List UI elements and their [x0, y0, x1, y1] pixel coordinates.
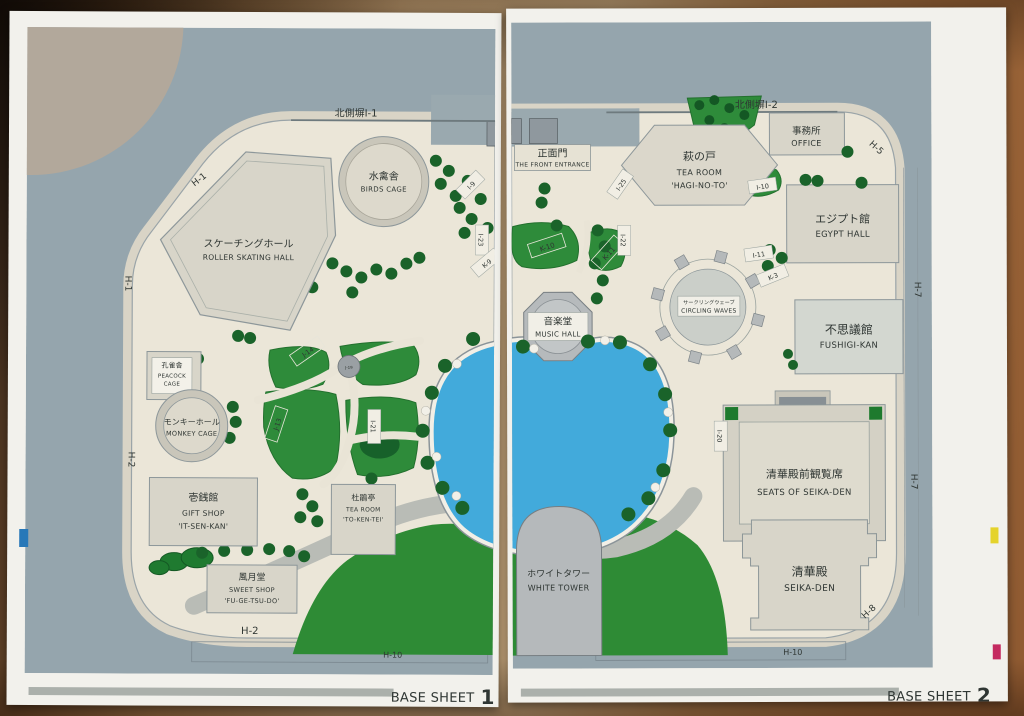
birds-label-en: BIRDS CAGE	[361, 185, 407, 193]
egypt-hall: エジプト館 EGYPT HALL	[787, 185, 899, 263]
entrance-label-jp: 正面門	[537, 147, 567, 159]
monkey-label-en: MONKEY CAGE	[166, 430, 217, 438]
sweet-label-en2: 'FU-GE-TSU-DO'	[224, 597, 279, 605]
office-label-jp: 事務所	[792, 125, 821, 137]
tag-i21: I-21	[368, 409, 381, 443]
monkey-label-jp: モンキーホール	[164, 418, 220, 427]
edge-h2-left: H-2	[126, 452, 136, 468]
north-wall-label: 北側塀I-1	[335, 106, 378, 119]
registration-mark-magenta	[993, 644, 1001, 659]
edge-h10-bottom: H-10	[783, 648, 802, 657]
front-entrance-label: 正面門 THE FRONT ENTRANCE	[514, 144, 590, 170]
tag-i23: I-23	[475, 225, 488, 255]
seats-label-en: SEATS OF SEIKA-DEN	[757, 488, 852, 498]
skating-label-en: ROLLER SKATING HALL	[203, 253, 295, 262]
sheet1-number: 1	[480, 685, 494, 707]
photo-of-park-base-maps: J-19	[0, 0, 1024, 716]
monkey-cage: モンキーホール MONKEY CAGE	[156, 390, 228, 462]
birds-cage: 水禽舎 BIRDS CAGE	[339, 136, 429, 226]
sheet1-footer-bar	[29, 687, 394, 697]
token-label-jp: 杜鵑亭	[351, 492, 375, 502]
circling-label-en: CIRCLING WAVES	[681, 308, 736, 315]
svg-text:I-22: I-22	[619, 234, 627, 247]
egypt-label-en: EGYPT HALL	[815, 230, 869, 240]
seats-label-jp: 清華殿前観覧席	[766, 467, 843, 481]
token-label-en1: TEA ROOM	[345, 506, 381, 513]
office-label-en: OFFICE	[791, 139, 821, 148]
gift-label-en1: GIFT SHOP	[182, 509, 225, 518]
front-entrance-plaza	[431, 95, 495, 145]
seika-label-jp: 清華殿	[792, 565, 828, 579]
gift-shop: 壱銭館 GIFT SHOP 'IT-SEN-KAN'	[149, 478, 257, 546]
music-label-jp: 音楽堂	[544, 315, 573, 327]
sheet1-map: J-19	[6, 11, 501, 707]
entrance-gate-right	[529, 119, 557, 144]
north-wall-label: 北側塀I-2	[735, 98, 778, 111]
seats-of-seika-den: 清華殿前観覧席 SEATS OF SEIKA-DEN	[723, 391, 885, 541]
registration-mark-cyan	[19, 529, 28, 547]
fushigi-kan: 不思議館 FUSHIGI-KAN	[795, 300, 903, 374]
edge-h7-upper: H-7	[912, 282, 922, 298]
sweet-label-jp: 風月堂	[239, 571, 266, 583]
tag-j19: J-19	[344, 365, 353, 370]
fushigi-label-en: FUSHIGI-KAN	[820, 341, 878, 351]
tag-i22: I-22	[618, 225, 631, 255]
tower-label-jp: ホワイトタワー	[527, 568, 590, 579]
tower-label-en: WHITE TOWER	[528, 583, 590, 592]
svg-text:I-20: I-20	[715, 430, 723, 443]
peacock-label-en2: CAGE	[164, 382, 181, 388]
sweet-shop: 風月堂 SWEET SHOP 'FU-GE-TSU-DO'	[207, 565, 297, 613]
white-tower: ホワイトタワー WHITE TOWER	[516, 506, 601, 655]
entrance-label-en: THE FRONT ENTRANCE	[514, 161, 589, 168]
base-sheet-2: ホワイトタワー WHITE TOWER 音楽堂 MUSIC HALL	[506, 7, 1008, 702]
birds-label-jp: 水禽舎	[369, 169, 399, 182]
fushigi-label-jp: 不思議館	[825, 322, 873, 337]
svg-text:I-21: I-21	[369, 420, 377, 433]
sheet1-title: BASE SHEET	[391, 691, 475, 706]
peacock-label-jp: 孔雀舎	[161, 361, 182, 370]
sheet2-map: ホワイトタワー WHITE TOWER 音楽堂 MUSIC HALL	[506, 7, 1008, 702]
edge-h2-bottom: H-2	[241, 626, 259, 637]
hagi-label-jp: 萩の戸	[683, 150, 716, 163]
sweet-label-en1: SWEET SHOP	[229, 586, 275, 594]
hagi-label-en2: 'HAGI-NO-TO'	[671, 181, 728, 190]
token-label-en2: 'TO-KEN-TEI'	[343, 516, 384, 523]
edge-h1-left: H-1	[122, 276, 132, 292]
north-wall	[291, 120, 495, 121]
hagi-label-en1: TEA ROOM	[676, 168, 722, 177]
circling-label-jp: サークリングウェーブ	[683, 298, 735, 306]
music-label-en: MUSIC HALL	[535, 330, 581, 338]
registration-mark-yellow	[990, 527, 998, 543]
gift-label-jp: 壱銭館	[188, 491, 218, 504]
seika-den: 清華殿 SEIKA-DEN	[742, 520, 876, 630]
skating-label-jp: スケーチングホール	[203, 237, 293, 250]
sheet2-footer-bar	[521, 688, 899, 697]
seika-label-en: SEIKA-DEN	[784, 584, 835, 594]
office: 事務所 OFFICE	[769, 113, 844, 155]
base-sheet-1: J-19	[6, 11, 501, 707]
sheet2-title: BASE SHEET	[887, 689, 971, 702]
egypt-label-jp: エジプト館	[815, 212, 870, 226]
tag-i20: I-20	[714, 421, 727, 451]
svg-text:I-23: I-23	[476, 234, 484, 247]
peacock-label-en1: PEACOCK	[158, 374, 186, 380]
edge-h10-bottom: H-10	[383, 651, 402, 660]
tea-room-tokentei: 杜鵑亭 TEA ROOM 'TO-KEN-TEI'	[331, 484, 395, 554]
entrance-gate-left	[511, 119, 521, 144]
sheet2-number: 2	[977, 683, 991, 702]
entrance-gate	[487, 121, 496, 146]
edge-h7-lower: H-7	[908, 474, 918, 490]
gift-label-en2: 'IT-SEN-KAN'	[178, 522, 228, 531]
